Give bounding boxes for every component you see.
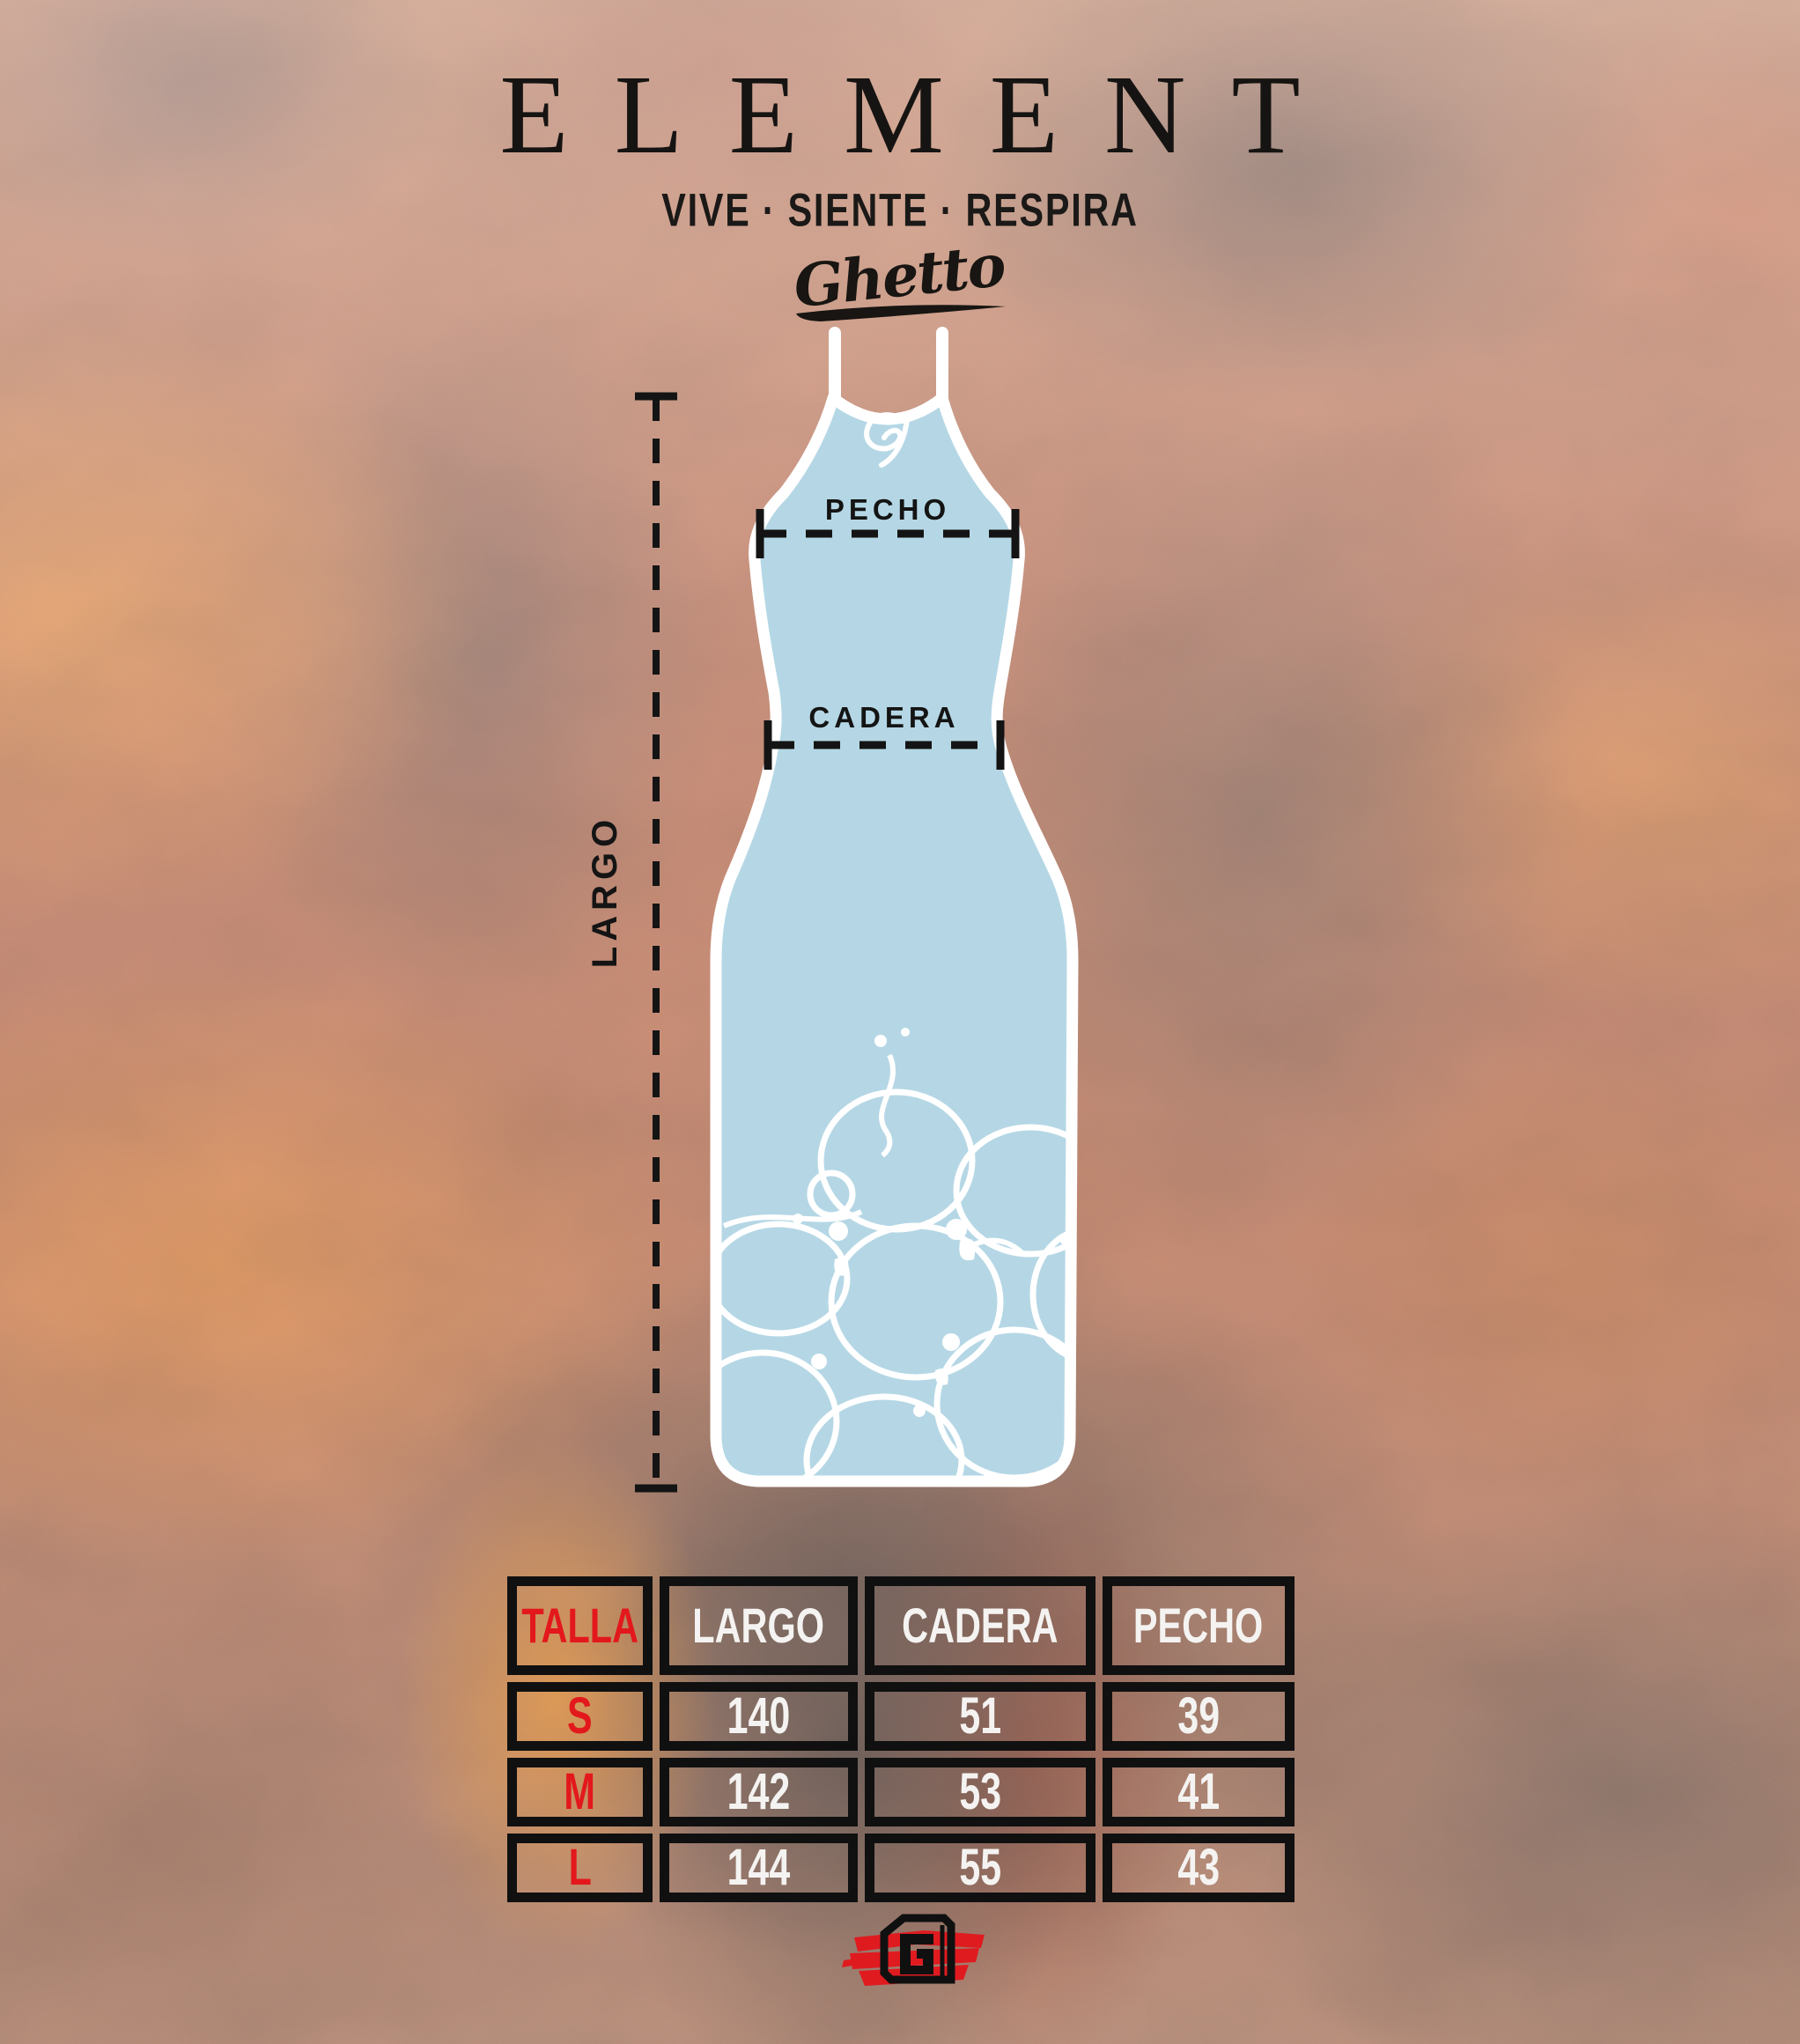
- col-header-cadera: CADERA: [865, 1576, 1095, 1675]
- size-m-cadera: 53: [865, 1758, 1095, 1826]
- size-s-cadera: 51: [865, 1682, 1095, 1751]
- col-header-talla: TALLA: [507, 1576, 653, 1675]
- size-guide-poster: ELEMENT VIVE · SIENTE · RESPIRA Ghetto: [0, 0, 1800, 2044]
- size-l-largo: 144: [660, 1834, 858, 1902]
- size-m-label: M: [507, 1758, 653, 1826]
- cadera-label: CADERA: [808, 701, 959, 734]
- size-s-label: S: [507, 1682, 653, 1751]
- col-header-largo: LARGO: [660, 1576, 858, 1675]
- size-l-cadera: 55: [865, 1834, 1095, 1902]
- size-m-pecho: 41: [1103, 1758, 1295, 1826]
- largo-label: LARGO: [586, 815, 624, 968]
- footer-logo: [842, 1918, 985, 1986]
- logo-g-letter: [900, 1934, 933, 1974]
- size-table: TALLA LARGO CADERA PECHO S 140 51 39 M 1…: [507, 1576, 1295, 1902]
- dress-body: [716, 398, 1073, 1481]
- pecho-label: PECHO: [825, 493, 950, 526]
- size-s-largo: 140: [660, 1682, 858, 1751]
- largo-dimension: [635, 396, 677, 1488]
- size-m-largo: 142: [660, 1758, 858, 1826]
- size-l-pecho: 43: [1103, 1834, 1295, 1902]
- dress-straps: [835, 333, 942, 398]
- size-l-label: L: [507, 1834, 653, 1902]
- size-s-pecho: 39: [1103, 1682, 1295, 1751]
- col-header-pecho: PECHO: [1103, 1576, 1295, 1675]
